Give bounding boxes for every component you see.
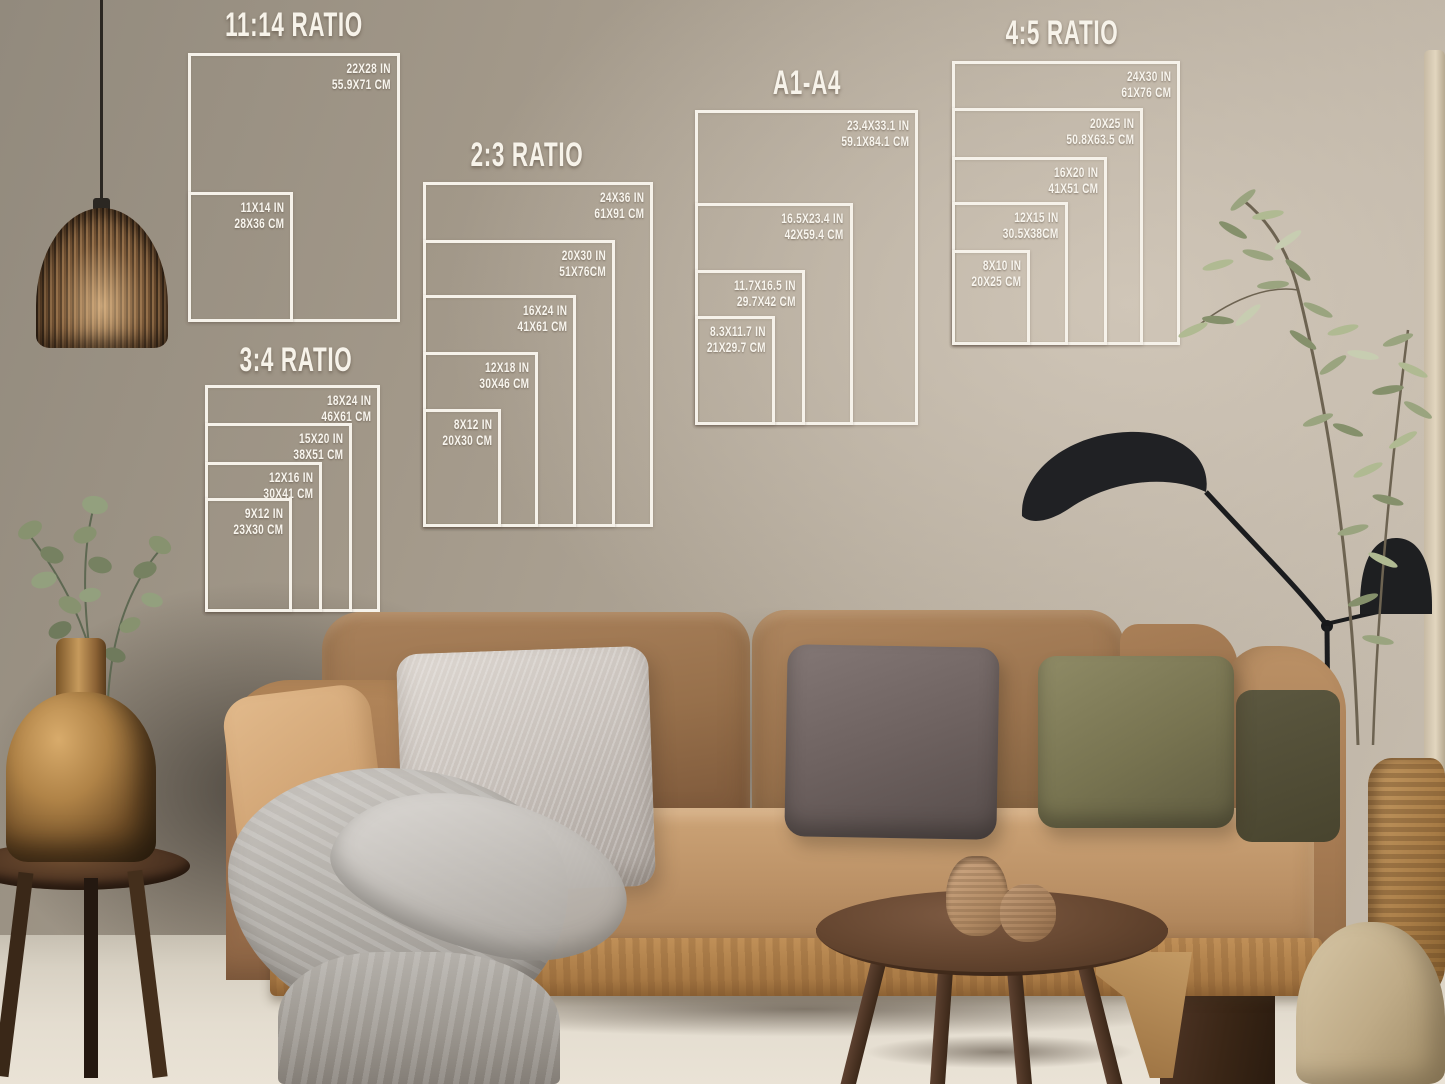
size-inches: 12X18 IN [479, 360, 529, 376]
size-frame-label: 15X20 IN38X51 CM [293, 431, 343, 462]
size-inches: 11.7X16.5 IN [734, 278, 796, 294]
size-inches: 11X14 IN [234, 200, 284, 216]
size-frame-label: 24X36 IN61X91 CM [594, 190, 644, 221]
size-frame-label: 12X18 IN30X46 CM [479, 360, 529, 391]
size-frame-label: 22X28 IN55.9X71 CM [332, 61, 391, 92]
living-room-mockup-photo: 11:14 RATIO22X28 IN55.9X71 CM11X14 IN28X… [0, 0, 1445, 1084]
size-frame-label: 24X30 IN61X76 CM [1121, 69, 1171, 100]
size-inches: 23.4X33.1 IN [841, 118, 909, 134]
size-centimeters: 61X76 CM [1121, 85, 1171, 101]
size-frame-label: 11X14 IN28X36 CM [234, 200, 284, 231]
size-centimeters: 59.1X84.1 CM [841, 134, 909, 150]
ceramic-vase-large [946, 856, 1008, 936]
size-inches: 20X30 IN [559, 248, 606, 264]
size-inches: 18X24 IN [321, 393, 371, 409]
size-inches: 8X12 IN [442, 417, 492, 433]
size-frame-label: 9X12 IN23X30 CM [233, 506, 283, 537]
size-frame-label: 8X12 IN20X30 CM [442, 417, 492, 448]
size-centimeters: 41X61 CM [517, 319, 567, 335]
size-guide-title: 3:4 RATIO [240, 341, 353, 380]
side-table-leg [84, 878, 98, 1078]
ceramic-vase-small [1000, 884, 1056, 942]
pillow-dark-gray [784, 644, 999, 840]
size-inches: 16X20 IN [1048, 165, 1098, 181]
size-inches: 9X12 IN [233, 506, 283, 522]
size-centimeters: 21X29.7 CM [707, 340, 766, 356]
size-inches: 24X30 IN [1121, 69, 1171, 85]
bronze-vase [6, 692, 156, 862]
size-centimeters: 28X36 CM [234, 216, 284, 232]
size-inches: 8.3X11.7 IN [707, 324, 766, 340]
size-centimeters: 51X76CM [559, 264, 606, 280]
size-centimeters: 20X30 CM [442, 433, 492, 449]
size-centimeters: 50.8X63.5 CM [1066, 132, 1134, 148]
size-centimeters: 42X59.4 CM [782, 227, 844, 243]
size-centimeters: 55.9X71 CM [332, 77, 391, 93]
size-inches: 16.5X23.4 IN [782, 211, 844, 227]
throw-blanket-drape [278, 952, 560, 1084]
size-guide-title: 2:3 RATIO [471, 136, 584, 175]
size-inches: 24X36 IN [594, 190, 644, 206]
size-centimeters: 38X51 CM [293, 447, 343, 463]
size-frame-label: 12X15 IN30.5X38CM [1003, 210, 1059, 241]
size-inches: 20X25 IN [1066, 116, 1134, 132]
size-frame-label: 12X16 IN30X41 CM [263, 470, 313, 501]
size-frame: 8X10 IN20X25 CM [952, 250, 1030, 345]
size-frame-label: 8.3X11.7 IN21X29.7 CM [707, 324, 766, 355]
rattan-pendant-lamp [36, 208, 168, 348]
size-inches: 8X10 IN [971, 258, 1021, 274]
size-frame-label: 23.4X33.1 IN59.1X84.1 CM [841, 118, 909, 149]
pendant-lamp-cord [100, 0, 103, 212]
size-frame-label: 16.5X23.4 IN42X59.4 CM [782, 211, 844, 242]
size-centimeters: 41X51 CM [1048, 181, 1098, 197]
size-centimeters: 20X25 CM [971, 274, 1021, 290]
size-inches: 22X28 IN [332, 61, 391, 77]
size-centimeters: 23X30 CM [233, 522, 283, 538]
size-frame: 8.3X11.7 IN21X29.7 CM [695, 316, 775, 425]
table-shadow [820, 1030, 1180, 1074]
size-inches: 16X24 IN [517, 303, 567, 319]
size-frame: 8X12 IN20X30 CM [423, 409, 501, 527]
size-centimeters: 29.7X42 CM [734, 294, 796, 310]
size-frame-label: 16X20 IN41X51 CM [1048, 165, 1098, 196]
size-frame-label: 18X24 IN46X61 CM [321, 393, 371, 424]
size-guide-title: 11:14 RATIO [225, 6, 363, 45]
size-guide-title: A1-A4 [773, 64, 841, 103]
size-centimeters: 30.5X38CM [1003, 226, 1059, 242]
size-frame-label: 20X25 IN50.8X63.5 CM [1066, 116, 1134, 147]
pillow-olive [1038, 656, 1234, 828]
size-frame-label: 20X30 IN51X76CM [559, 248, 606, 279]
size-frame-label: 8X10 IN20X25 CM [971, 258, 1021, 289]
size-guide-title: 4:5 RATIO [1006, 14, 1119, 53]
size-inches: 15X20 IN [293, 431, 343, 447]
size-frame: 11X14 IN28X36 CM [188, 192, 293, 322]
size-frame: 9X12 IN23X30 CM [205, 498, 292, 612]
size-centimeters: 46X61 CM [321, 409, 371, 425]
size-frame-label: 11.7X16.5 IN29.7X42 CM [734, 278, 796, 309]
size-centimeters: 30X46 CM [479, 376, 529, 392]
size-inches: 12X15 IN [1003, 210, 1059, 226]
size-inches: 12X16 IN [263, 470, 313, 486]
pillow-dark-olive [1236, 690, 1340, 842]
size-centimeters: 61X91 CM [594, 206, 644, 222]
bronze-vase-neck [56, 638, 106, 700]
size-frame-label: 16X24 IN41X61 CM [517, 303, 567, 334]
